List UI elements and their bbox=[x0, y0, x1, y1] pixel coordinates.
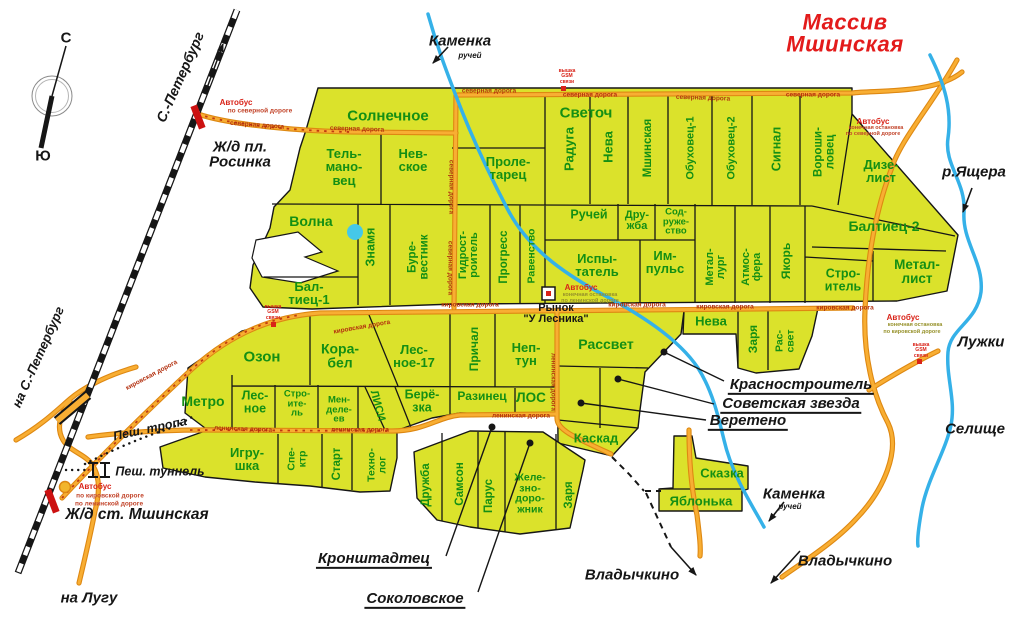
plot-rassvet-2: Рас- свет bbox=[774, 330, 795, 353]
plot-stroitel-2: Стро- ите- ль bbox=[284, 389, 310, 418]
plot-start: Старт bbox=[332, 448, 344, 481]
plot-obukhovec-1: Обуховец-1 bbox=[685, 116, 696, 179]
plot-parus: Парус bbox=[484, 479, 496, 513]
bus-stop-4-sub1: конечная остановка bbox=[888, 323, 943, 329]
plot-neptun: Неп- тун bbox=[512, 341, 541, 368]
plot-lesnoe-17: Лес- ное-17 bbox=[393, 343, 435, 370]
plot-beryozka: Берё- зка bbox=[405, 388, 440, 414]
road-severnaya-1: северная дорога bbox=[230, 121, 285, 131]
bus-stop-5-sub1: по кировской дороге bbox=[76, 494, 144, 501]
bus-stop-5-title: Автобус bbox=[79, 483, 112, 491]
place-kamenka-north-sub: ручей bbox=[458, 52, 481, 60]
plot-igrushka: Игру- шка bbox=[230, 446, 264, 473]
plot-zarya-3: Заря bbox=[564, 481, 576, 508]
bus-stop-4-title: Автобус bbox=[887, 314, 920, 322]
plot-burevestnik: Буре- вестник bbox=[407, 235, 430, 280]
plot-znamya: Знамя bbox=[365, 228, 378, 267]
plot-rassvet: Рассвет bbox=[578, 337, 633, 351]
bus-stop-3-sub2: по ленинской дороге bbox=[561, 299, 619, 305]
plot-ozon: Озон bbox=[244, 349, 281, 364]
plot-korabel: Кора- бел bbox=[321, 342, 359, 371]
road-leninskaya-3: ленинская дорога bbox=[492, 414, 550, 421]
place-vladychkino-west: Владычкино bbox=[585, 567, 679, 582]
place-spb-top: С.-Петербург bbox=[154, 30, 207, 125]
plot-ravenstvo: Равенство bbox=[527, 229, 538, 284]
road-severnaya-4: северная дорога bbox=[563, 93, 617, 100]
plot-progress: Прогресс bbox=[499, 230, 511, 283]
market-label: Рынок "У Лесника" bbox=[523, 303, 588, 325]
place-zhd-mshinskaya: Ж/д ст. Мшинская bbox=[65, 507, 208, 523]
bus-stop-2-sub2: по северной дороге bbox=[846, 132, 901, 138]
plot-lesnoe: Лес- ное bbox=[242, 389, 269, 415]
bus-stop-3-sub1: конечная остановка bbox=[563, 293, 618, 299]
place-na-lugu: на Лугу bbox=[61, 590, 118, 605]
plot-impuls: Им- пульс bbox=[646, 249, 684, 276]
bus-stop-1-sub: по северной дороге bbox=[228, 109, 293, 116]
plot-mendeleev: Мен- деле- ев bbox=[326, 395, 352, 424]
gsm-tower-1: вышка GSM связи bbox=[559, 69, 576, 85]
callout-sovetskaya-zvezda: Советская звезда bbox=[720, 396, 861, 414]
place-kamenka-south: Каменка bbox=[763, 486, 825, 501]
road-severnaya-2: северная дорога bbox=[330, 126, 384, 135]
place-yashchera: р.Ящера bbox=[942, 164, 1006, 179]
callout-vereteno: Веретено bbox=[708, 413, 788, 431]
road-severnaya-v1: северная дорога bbox=[447, 160, 454, 214]
road-severnaya-v2: северная дорога bbox=[446, 241, 453, 295]
place-selishche: Селище bbox=[945, 421, 1005, 436]
plot-telmanovec: Тель- мано- вец bbox=[326, 147, 363, 187]
place-na-spb: на С.-Петербург bbox=[10, 305, 66, 410]
map-canvas: СолнечноеСветочРадугаНеваМшинскаяОбухове… bbox=[0, 0, 1024, 632]
road-kirovskaya-6: кировская дорога bbox=[816, 306, 873, 313]
plot-obukhovec-2: Обуховец-2 bbox=[726, 116, 737, 179]
road-kirovskaya-1: кировская дорога bbox=[125, 360, 179, 393]
compass-south: Ю bbox=[35, 148, 50, 163]
bus-stop-4-sub2: по кировской дороге bbox=[883, 330, 940, 336]
place-pesh-tropa: Пеш. тропа bbox=[112, 415, 188, 443]
plot-signal: Сигнал bbox=[771, 127, 784, 171]
road-severnaya-5: северная дорога bbox=[676, 95, 730, 104]
plot-yakor: Якорь bbox=[780, 243, 792, 280]
place-zhd-rosinka: Ж/д пл. Росинка bbox=[209, 140, 271, 171]
road-kirovskaya-4: кировская дорога bbox=[608, 303, 665, 310]
place-pesh-tunnel: Пеш. туннель bbox=[115, 466, 204, 479]
callout-sokolovskoe: Соколовское bbox=[364, 591, 465, 609]
road-leninskaya-v: ленинская дорога bbox=[549, 353, 556, 411]
map-title: Массив Мшинская bbox=[756, 12, 935, 57]
bus-stop-3-title: Автобус bbox=[565, 284, 598, 292]
plot-los: ЛОС bbox=[516, 391, 546, 405]
plot-yablonka: Яблонька bbox=[670, 494, 733, 507]
plot-prichal: Причал bbox=[468, 327, 480, 372]
plot-sodruzhestvo: Сод- руже- ство bbox=[663, 207, 689, 236]
callout-kronshtadtec: Кронштадтец bbox=[316, 551, 432, 569]
map-labels-layer: СолнечноеСветочРадугаНеваМшинскаяОбухове… bbox=[0, 0, 1024, 632]
plot-zheleznodorozhnik: Желе- зно- доро- жник bbox=[514, 473, 545, 516]
road-severnaya-6: северная дорога bbox=[786, 93, 840, 100]
road-leninskaya-2: ленинская дорога bbox=[331, 428, 389, 435]
place-vladychkino-east: Владычкино bbox=[798, 553, 892, 568]
gsm-tower-3: вышка GSM связи bbox=[913, 343, 930, 359]
road-kirovskaya-2: кировская дорога bbox=[333, 320, 391, 337]
plot-lisi: ЛИСИ bbox=[368, 389, 387, 422]
plot-neva-north: Нева bbox=[601, 131, 614, 163]
place-kamenka-south-sub: ручей bbox=[778, 503, 801, 511]
plot-zarya-2: Заря bbox=[747, 325, 759, 353]
place-luzhki: Лужки bbox=[958, 334, 1005, 349]
plot-baltiec-2: Балтиец-2 bbox=[848, 219, 919, 233]
plot-metallist: Метал- лист bbox=[894, 258, 940, 286]
plot-neva-2: Нева bbox=[695, 314, 727, 327]
plot-baltiec-1: Бал- тиец-1 bbox=[288, 280, 329, 307]
bus-stop-1-title: Автобус bbox=[220, 99, 253, 107]
road-kirovskaya-5: кировская дорога bbox=[696, 305, 753, 312]
plot-ispytatel: Испы- татель bbox=[575, 252, 618, 279]
plot-volna: Волна bbox=[289, 214, 332, 228]
bus-stop-5-sub2: по ленинской дороге bbox=[75, 502, 143, 509]
plot-raduga: Радуга bbox=[562, 127, 575, 171]
road-leninskaya-1: ленинская дорога bbox=[214, 426, 272, 435]
road-kirovskaya-3: кировская дорога bbox=[441, 303, 498, 310]
plot-dizelist: Дизе- лист bbox=[863, 158, 898, 185]
plot-gidrostroitel: Гидрост- роитель bbox=[458, 231, 480, 279]
plot-mshinskaya: Мшинская bbox=[643, 119, 655, 177]
plot-solnechnoe: Солнечное bbox=[347, 108, 428, 123]
plot-spektr: Спе- ктр bbox=[286, 447, 307, 470]
plot-tekhnolog: Техно- лог bbox=[366, 448, 387, 482]
plot-nevskoe: Нев- ское bbox=[399, 147, 428, 174]
plot-druzhba-north: Дру- жба bbox=[625, 210, 649, 232]
plot-kaskad: Каскад bbox=[574, 431, 619, 444]
plot-stroitel-east: Стро- итель bbox=[825, 267, 861, 293]
plot-svetoch: Светоч bbox=[560, 105, 613, 120]
bus-stop-2-sub1: конечная остановка bbox=[849, 126, 904, 132]
plot-skazka: Сказка bbox=[700, 466, 743, 479]
place-kamenka-north: Каменка bbox=[429, 33, 491, 48]
plot-ruchej: Ручей bbox=[570, 209, 607, 222]
compass-north: С bbox=[61, 30, 72, 45]
plot-razinec: Разинец bbox=[457, 390, 506, 402]
plot-atmosfera: Атмос- фера bbox=[741, 248, 763, 286]
plot-druzhba-2: Дружба bbox=[421, 463, 433, 506]
plot-voroshilovec: Вороши- ловец bbox=[813, 127, 836, 177]
callout-krasnostroitel: Красностроитель bbox=[728, 377, 874, 395]
bus-stop-2-title: Автобус bbox=[857, 118, 890, 126]
road-severnaya-3: северная дорога bbox=[462, 89, 516, 96]
plot-metallurg: Метал- лург bbox=[705, 248, 727, 285]
gsm-tower-2: вышка GSM связи bbox=[265, 305, 282, 321]
plot-proletarec: Проле- тарец bbox=[486, 155, 531, 182]
plot-metro: Метро bbox=[181, 394, 224, 408]
plot-samson: Самсон bbox=[455, 462, 467, 506]
